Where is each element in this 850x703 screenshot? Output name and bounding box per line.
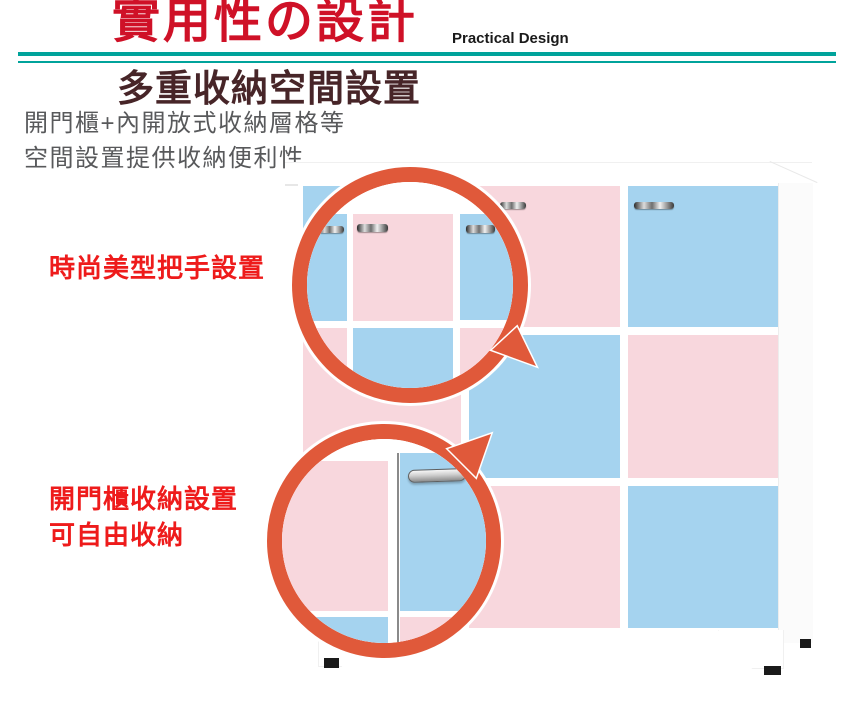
label-storage-line-1: 開門櫃收納設置 xyxy=(49,481,238,517)
magnified-panel-lower xyxy=(307,328,347,388)
magnified-panel-lower xyxy=(460,328,513,388)
description-line-1: 開門櫃+內開放式收納層格等 xyxy=(24,106,346,141)
divider-line-thick xyxy=(18,52,836,56)
magnified-cabinet-top xyxy=(307,182,513,214)
callout-storage-content xyxy=(282,439,486,643)
cabinet-door-panel xyxy=(628,335,778,478)
subtitle-english: Practical Design xyxy=(452,30,569,47)
door-handle-icon xyxy=(357,224,388,232)
label-storage-design: 開門櫃收納設置 可自由收納 xyxy=(49,481,238,553)
magnified-open-door-pink xyxy=(282,461,388,611)
door-handle-icon xyxy=(408,468,466,483)
cabinet-foot xyxy=(800,639,811,648)
door-handle-icon xyxy=(634,202,674,209)
callout-circle-handles xyxy=(292,167,528,403)
section-title: 多重收納空間設置 xyxy=(117,58,421,112)
label-handle-design: 時尚美型把手設置 xyxy=(49,250,265,286)
cabinet-leg-right xyxy=(718,630,784,669)
door-gap-shadow xyxy=(397,453,399,643)
magnified-panel-lower xyxy=(282,617,388,643)
label-storage-line-2: 可自由收納 xyxy=(49,517,238,553)
magnified-panel-lower xyxy=(353,328,453,388)
magnified-panel-lower xyxy=(400,617,486,643)
door-handle-icon xyxy=(318,226,344,233)
callout-circle-storage xyxy=(267,424,501,658)
door-handle-icon xyxy=(466,225,495,233)
product-feature-graphic: 實用性の設計 Practical Design 多重收納空間設置 開門櫃+內開放… xyxy=(0,0,850,703)
page-title: 實用性の設計 xyxy=(112,0,418,52)
cabinet-foot xyxy=(324,658,339,668)
cabinet-foot xyxy=(764,666,781,675)
cabinet-door-panel xyxy=(628,486,778,628)
callout-handles-content xyxy=(307,182,513,388)
cabinet-side-panel xyxy=(778,183,813,643)
